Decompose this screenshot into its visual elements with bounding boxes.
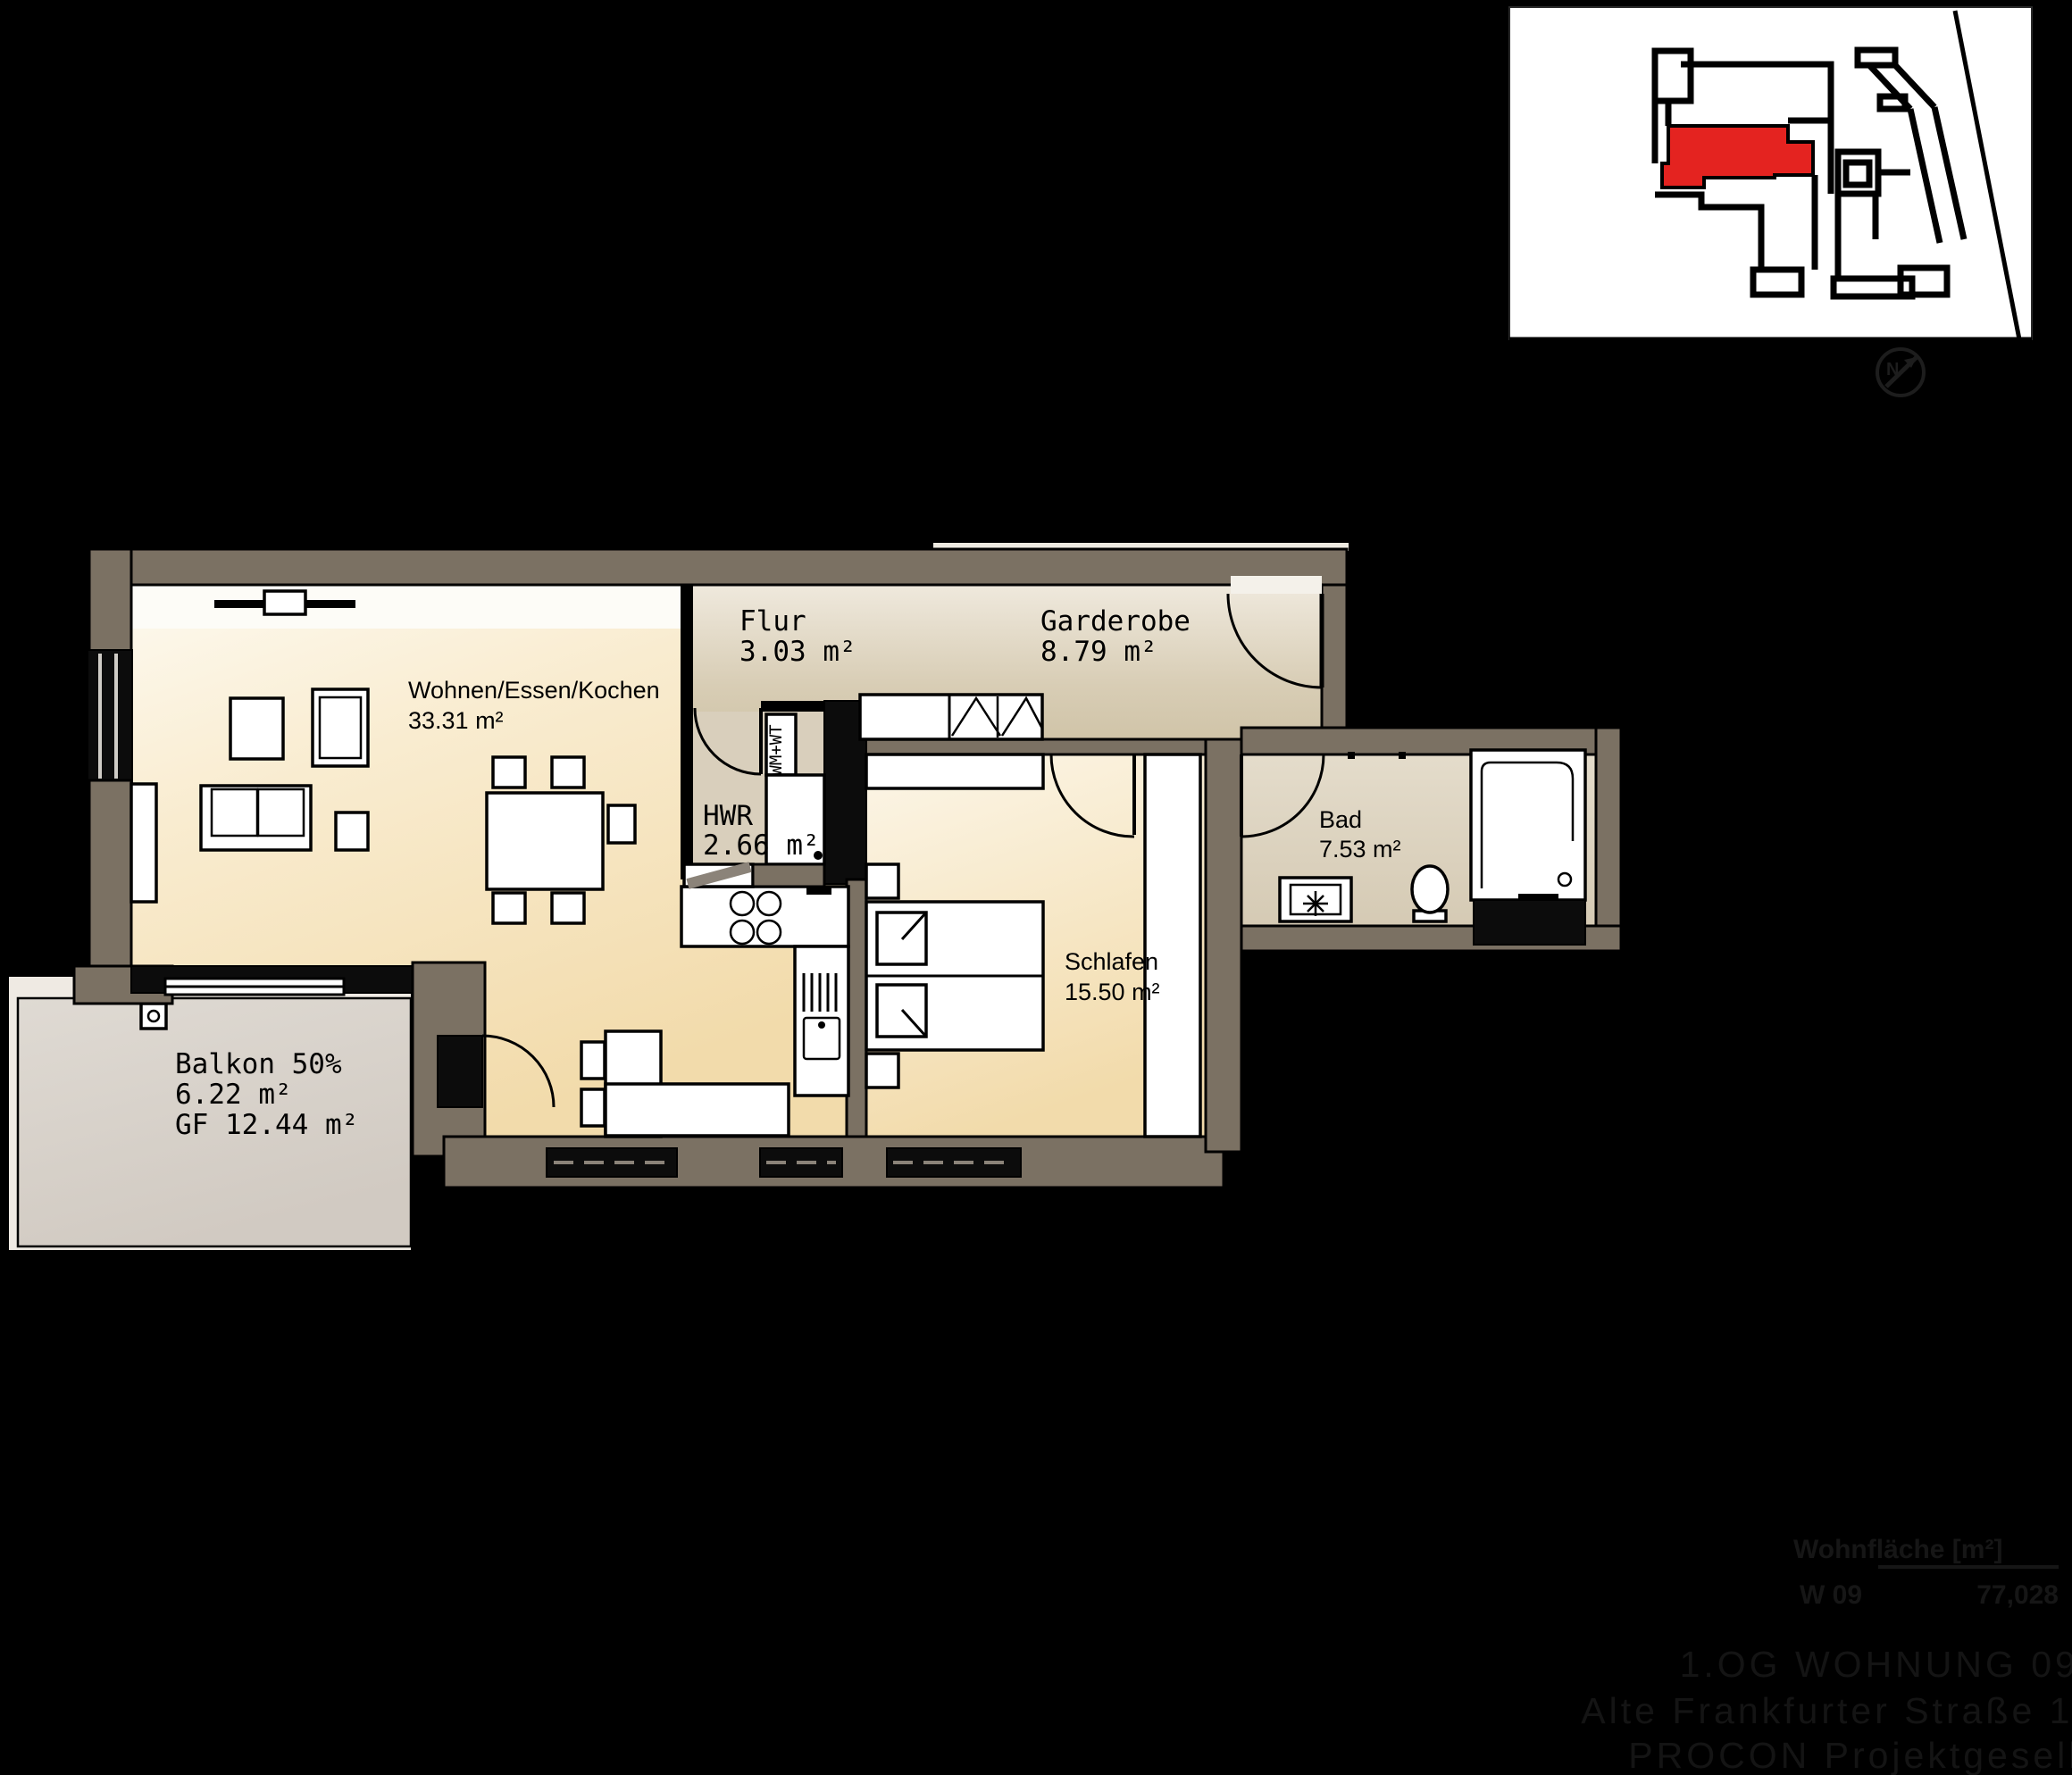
balcony-drain bbox=[141, 1004, 166, 1029]
wall-left-upper bbox=[89, 549, 131, 652]
armchair bbox=[313, 689, 368, 766]
door-stop-mark bbox=[1348, 752, 1355, 759]
nightstand bbox=[866, 864, 898, 898]
wall-hwr-top bbox=[761, 701, 824, 712]
dining-chair bbox=[493, 893, 525, 923]
side-table bbox=[336, 812, 368, 850]
title-line-1: 1.OG WOHNUNG 09 M.1:100 bbox=[1680, 1644, 2072, 1685]
label-balcony-gf: GF 12.44 m² bbox=[175, 1109, 358, 1141]
label-flur-name: Flur bbox=[739, 605, 806, 637]
label-living-area: 33.31 m² bbox=[408, 707, 504, 734]
wall-top bbox=[89, 549, 1347, 585]
wall-bath-right bbox=[1596, 728, 1621, 951]
label-bath-area: 7.53 m² bbox=[1319, 836, 1401, 862]
nightstand bbox=[866, 1054, 898, 1087]
label-balcony-area: 6.22 m² bbox=[175, 1079, 292, 1111]
dining-chair bbox=[608, 805, 635, 843]
label-garderobe-area: 8.79 m² bbox=[1040, 636, 1157, 668]
label-bath-name: Bad bbox=[1319, 806, 1362, 833]
sink-tap bbox=[818, 1021, 825, 1029]
window-bottom-bedroom bbox=[887, 1148, 1021, 1177]
floorplan-drawing: Wohnen/Essen/Kochen 33.31 m² Flur 3.03 m… bbox=[0, 0, 2072, 1775]
window-left bbox=[88, 650, 132, 782]
label-garderobe-name: Garderobe bbox=[1040, 605, 1191, 637]
coffee-table bbox=[230, 698, 283, 759]
window-bottom-kitchen-2 bbox=[760, 1148, 842, 1177]
label-balcony-name: Balkon 50% bbox=[175, 1048, 342, 1080]
counter-handle bbox=[806, 887, 831, 895]
area-table-value: 77,028 bbox=[1976, 1580, 2059, 1610]
label-bedroom-area: 15.50 m² bbox=[1065, 979, 1160, 1005]
wall-left-lower bbox=[89, 780, 131, 970]
label-living-name: Wohnen/Essen/Kochen bbox=[408, 677, 660, 704]
area-table-header: Wohnfläche [m²] bbox=[1793, 1535, 2002, 1564]
label-flur-area: 3.03 m² bbox=[739, 636, 856, 668]
wall-living-hall bbox=[682, 585, 693, 712]
label-hwr-name: HWR bbox=[703, 800, 753, 832]
label-bedroom-name: Schlafen bbox=[1065, 948, 1158, 975]
dining-chair bbox=[493, 757, 525, 787]
kitchen-counter bbox=[681, 887, 848, 946]
dining-chair bbox=[552, 893, 584, 923]
wall-bedroom-bath bbox=[1206, 739, 1241, 1152]
floorplan-canvas: Wohnen/Essen/Kochen 33.31 m² Flur 3.03 m… bbox=[0, 0, 2072, 1775]
door-stop-mark bbox=[1399, 752, 1406, 759]
area-table-unit: W 09 bbox=[1800, 1580, 1862, 1610]
sofa bbox=[201, 786, 311, 850]
room-living-lightband bbox=[131, 580, 681, 629]
island-stool bbox=[581, 1089, 605, 1126]
wall-hall-bedroom bbox=[853, 739, 1241, 754]
label-hwr-area: 2.66 m² bbox=[703, 829, 820, 862]
window-balcony bbox=[165, 979, 344, 995]
dining-table bbox=[487, 793, 603, 889]
bedroom-wardrobe-tall bbox=[1145, 754, 1200, 1137]
tv bbox=[264, 591, 305, 614]
bedroom-wardrobe-top bbox=[866, 754, 1043, 788]
island-stool bbox=[581, 1042, 605, 1079]
wall-entry-right bbox=[1322, 585, 1347, 741]
shaft-bath bbox=[1474, 900, 1585, 945]
washbasin bbox=[1280, 878, 1351, 921]
kitchen-island-ext bbox=[606, 1084, 789, 1136]
hall-wardrobe bbox=[860, 695, 1042, 739]
hwr-bottom-wall bbox=[753, 864, 824, 887]
shower bbox=[1471, 750, 1585, 902]
door-balcony-leaf bbox=[438, 1036, 482, 1107]
dining-chair bbox=[552, 757, 584, 787]
site-overview bbox=[1509, 7, 2032, 339]
title-line-3: PROCON Projektgesellschaft mbH bbox=[1628, 1735, 2072, 1775]
title-line-2: Alte Frankfurter Straße 102, Bad Vilbel bbox=[1581, 1690, 2072, 1731]
toilet bbox=[1412, 866, 1448, 921]
shelf-left bbox=[131, 784, 156, 902]
compass-label: N bbox=[1886, 360, 1899, 379]
window-bottom-kitchen bbox=[547, 1148, 677, 1177]
label-appliances: WM+WT bbox=[766, 724, 786, 775]
